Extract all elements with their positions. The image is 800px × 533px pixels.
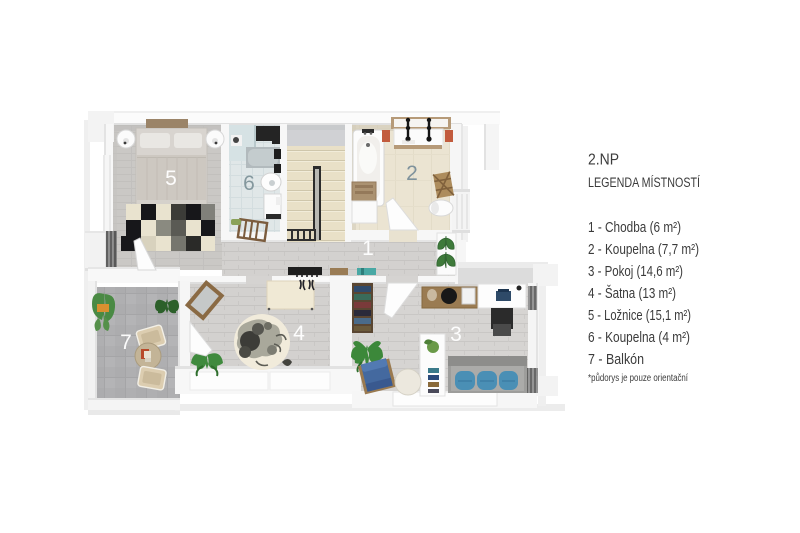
svg-text:2.NP: 2.NP [588,152,619,169]
svg-text:6: 6 [243,172,255,195]
svg-text:4 - Šatna (13 m²): 4 - Šatna (13 m²) [588,285,676,302]
svg-text:5: 5 [165,167,177,190]
svg-text:3 - Pokoj (14,6 m²): 3 - Pokoj (14,6 m²) [588,264,683,280]
svg-text:1: 1 [362,237,374,260]
svg-text:6 - Koupelna (4 m²): 6 - Koupelna (4 m²) [588,330,690,346]
svg-text:2 - Koupelna (7,7 m²): 2 - Koupelna (7,7 m²) [588,242,699,258]
svg-text:3: 3 [450,323,462,346]
svg-text:LEGENDA MÍSTNOSTÍ: LEGENDA MÍSTNOSTÍ [588,175,700,190]
svg-text:4: 4 [293,322,305,345]
svg-text:2: 2 [406,162,418,185]
svg-text:*půdorys je pouze orientační: *půdorys je pouze orientační [588,372,688,384]
svg-text:5 - Ložnice (15,1 m²): 5 - Ložnice (15,1 m²) [588,308,691,324]
svg-text:1 - Chodba (6 m²): 1 - Chodba (6 m²) [588,220,681,236]
svg-text:7: 7 [120,331,132,354]
svg-text:7 - Balkón: 7 - Balkón [588,352,644,368]
